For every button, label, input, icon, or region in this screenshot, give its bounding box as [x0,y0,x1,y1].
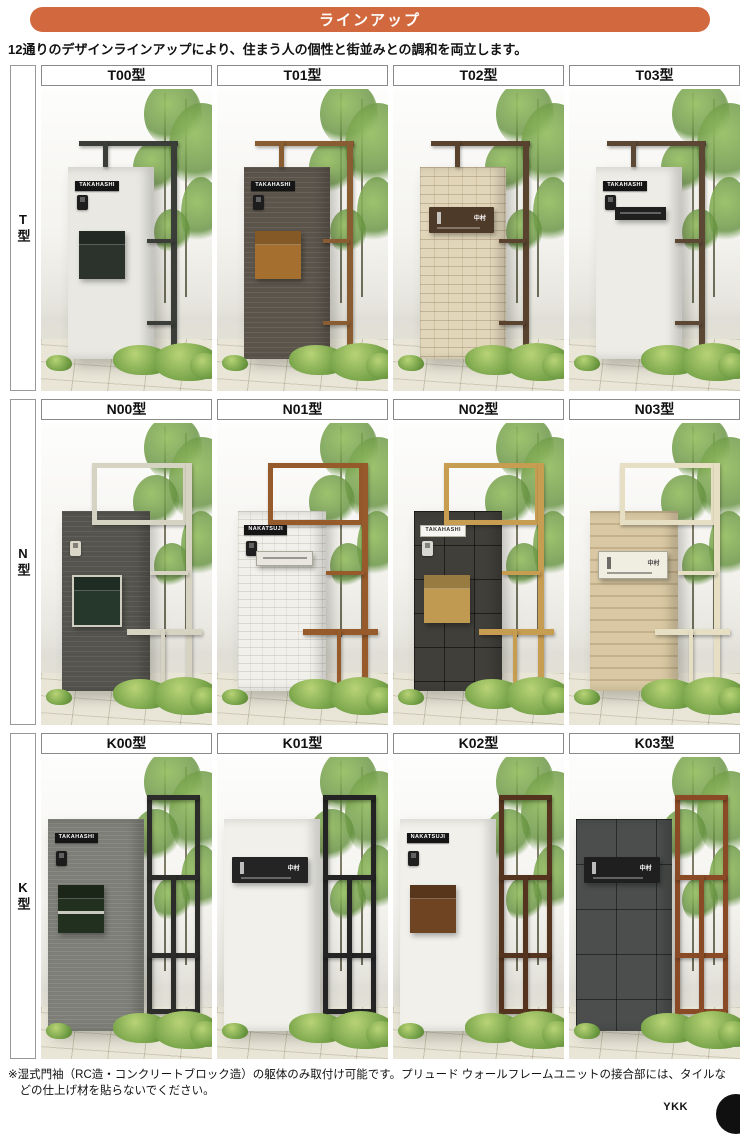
wall-frame-bar [147,795,152,1033]
section-title: ラインアップ [319,9,421,30]
gate-wall [590,511,679,691]
shrub [46,689,72,705]
wall-frame-bar [347,875,352,1014]
wall-frame-bar [147,239,173,243]
wall-frame-bar [147,321,173,325]
wall-frame-bar [675,239,701,243]
mailbox [424,575,470,623]
model-label: T03型 [569,65,740,86]
wall-frame-bar [255,141,354,146]
intercom [408,851,419,866]
wall-frame-bar [279,141,284,167]
intercom-screen [249,543,254,548]
gate-wall [420,167,506,359]
wall-frame-bar [323,795,328,1033]
wall-frame-bar [714,463,720,691]
mail-intercom-unit: 中村 [232,857,307,883]
product-photo: NAKATSUJI [393,757,564,1059]
model-label: T01型 [217,65,388,86]
intercom [253,195,264,210]
wall-frame-bar [499,239,525,243]
mailbox [58,885,104,933]
nameplate: NAKATSUJI [407,833,450,843]
unit-nameplate: 中村 [640,863,652,872]
wall-frame-bar [631,141,636,167]
intercom-screen [608,197,613,202]
mailbox [72,575,122,627]
mail-intercom-unit: 中村 [429,207,494,233]
mailbox-lid [410,885,456,899]
mail-intercom-unit: 中村 [584,857,659,883]
product-photo: 中村 [217,757,388,1059]
wall-frame-bar [431,141,530,146]
model-label: K01型 [217,733,388,754]
product-photo: TAKAHASHI [41,757,212,1059]
lineup-cell-T01型: T01型TAKAHASHI [217,65,388,391]
unit-nameplate: 中村 [288,863,300,872]
model-label: T02型 [393,65,564,86]
mail-slot-line [607,572,652,574]
wall-frame-bar [678,571,716,575]
shrub [398,689,424,705]
mailbox-lid [255,231,301,245]
nameplate: TAKAHASHI [420,525,466,537]
gate-wall [576,819,672,1031]
lineup-grid: T型T00型TAKAHASHIT01型TAKAHASHIT02型中村T03型TA… [0,65,740,1059]
intercom-screen [80,197,85,202]
lineup-cell-N00型: N00型 [41,399,212,725]
mailbox [255,231,301,279]
wall-frame-bar [323,795,374,800]
lineup-row-N型: N型N00型N01型NAKATSUJIN02型TAKAHASHIN03型中村 [10,399,740,725]
mailbox [79,231,125,279]
lineup-cell-N03型: N03型中村 [569,399,740,725]
wall-frame-bar [699,875,704,1014]
lineup-cell-K02型: K02型NAKATSUJI [393,733,564,1059]
wall-frame-bar [455,141,460,167]
intercom [56,851,67,866]
intercom-lens [607,557,611,569]
shrub [222,689,248,705]
tree-foliage [506,543,542,589]
intercom-screen [59,853,64,858]
intercom-lens [240,862,244,874]
mail-slot-line [593,877,643,879]
wall-frame-rect [444,463,540,525]
intercom-screen [256,197,261,202]
lineup-cell-T00型: T00型TAKAHASHI [41,65,212,391]
model-label: K00型 [41,733,212,754]
wall-frame-bar [675,795,680,1033]
lineup-row-T型: T型T00型TAKAHASHIT01型TAKAHASHIT02型中村T03型TA… [10,65,740,391]
wall-frame-bar [723,795,728,1033]
lineup-cell-K00型: K00型TAKAHASHI [41,733,212,1059]
wall-frame-bar [195,795,200,1033]
model-label: K02型 [393,733,564,754]
wall-frame-bar [79,141,178,146]
shrub [46,355,72,371]
nameplate: TAKAHASHI [75,181,119,191]
wall-frame-bar [675,795,726,800]
product-photo: TAKAHASHI [569,89,740,391]
mail-slot-line [620,212,661,214]
lineup-cell-K01型: K01型中村 [217,733,388,1059]
gate-wall [224,819,320,1031]
intercom-lens [437,212,441,224]
intercom-screen [73,543,78,548]
mailbox-lid [424,575,470,589]
nameplate: TAKAHASHI [55,833,99,843]
wall-frame-bar [523,875,528,1014]
shrub [222,1023,248,1039]
wall-frame-bar [147,795,198,800]
model-label: N03型 [569,399,740,420]
product-photo: TAKAHASHI [393,423,564,725]
lineup-cell-T03型: T03型TAKAHASHI [569,65,740,391]
wall-frame-bar [326,571,364,575]
intercom [70,541,81,556]
wall-frame-bar [547,795,552,1033]
lineup-cell-T02型: T02型中村 [393,65,564,391]
section-title-bar: ラインアップ [30,7,710,32]
unit-nameplate: 中村 [647,558,659,567]
footnote-text: ※湿式門袖（RC造・コンクリートブロック造）の躯体のみ取付け可能です。プリュード… [8,1067,732,1099]
wall-frame-bar [323,239,349,243]
intercom-lens [592,862,596,874]
wall-frame-rect [268,463,364,525]
wall-frame-bar [499,795,550,800]
wall-frame-bar [675,321,701,325]
wall-frame-bar [371,795,376,1033]
shrub [574,355,600,371]
wall-frame-bar [502,571,540,575]
mail-slot-line [263,557,307,559]
mailbox-lid [58,885,104,899]
product-photo: NAKATSUJI [217,423,388,725]
wall-frame-bar [538,463,544,691]
brand-text: YKK [663,1101,688,1113]
unit-nameplate: 中村 [474,213,486,222]
lineup-cell-K03型: K03型中村 [569,733,740,1059]
nameplate: NAKATSUJI [244,525,287,535]
mail-intercom-unit: 中村 [598,551,668,579]
wall-frame-rect [92,463,188,525]
intro-text: 12通りのデザインラインアップにより、住まう人の個性と街並みとの調和を両立します… [8,39,732,58]
row-label-K型: K型 [10,733,36,1059]
ykk-ap-logo-mark [716,1094,740,1134]
product-photo: TAKAHASHI [217,89,388,391]
nameplate: TAKAHASHI [603,181,647,191]
wall-frame-bar [186,463,192,691]
mail-slot-line [241,877,291,879]
mail-slot [615,207,666,220]
model-label: N02型 [393,399,564,420]
wall-frame-bar [171,875,176,1014]
shrub [574,689,600,705]
row-label-N型: N型 [10,399,36,725]
mailbox-trim-stripe [58,911,104,914]
model-label: N00型 [41,399,212,420]
intercom-screen [411,853,416,858]
shrub [46,1023,72,1039]
lineup-cell-N02型: N02型TAKAHASHI [393,399,564,725]
tree-foliage [154,543,190,589]
intercom-screen [425,543,430,548]
wall-frame-rect [620,463,716,525]
product-photo: 中村 [569,423,740,725]
gate-wall [238,511,327,691]
lineup-row-K型: K型K00型TAKAHASHIK01型中村K02型NAKATSUJIK03型中村 [10,733,740,1059]
product-photo [41,423,212,725]
mail-slot [256,551,313,566]
product-photo: 中村 [569,757,740,1059]
model-label: T00型 [41,65,212,86]
shrub [574,1023,600,1039]
lineup-cell-N01型: N01型NAKATSUJI [217,399,388,725]
shrub [222,355,248,371]
nameplate: TAKAHASHI [251,181,295,191]
mailbox [410,885,456,933]
row-label-T型: T型 [10,65,36,391]
shrub [398,1023,424,1039]
wall-frame-bar [323,321,349,325]
wall-frame-bar [103,141,108,167]
wall-frame-bar [607,141,706,146]
tree-foliage [682,543,718,589]
mailbox-lid [74,577,120,591]
model-label: K03型 [569,733,740,754]
wall-frame-bar [499,321,525,325]
wall-frame-bar [499,795,504,1033]
intercom [77,195,88,210]
mail-slot-line [437,227,480,229]
wall-frame-bar [362,463,368,691]
tree-foliage [330,543,366,589]
product-photo: 中村 [393,89,564,391]
mailbox-lid [79,231,125,245]
model-label: N01型 [217,399,388,420]
shrub [398,355,424,371]
wall-frame-bar [150,571,188,575]
product-photo: TAKAHASHI [41,89,212,391]
intercom [422,541,433,556]
